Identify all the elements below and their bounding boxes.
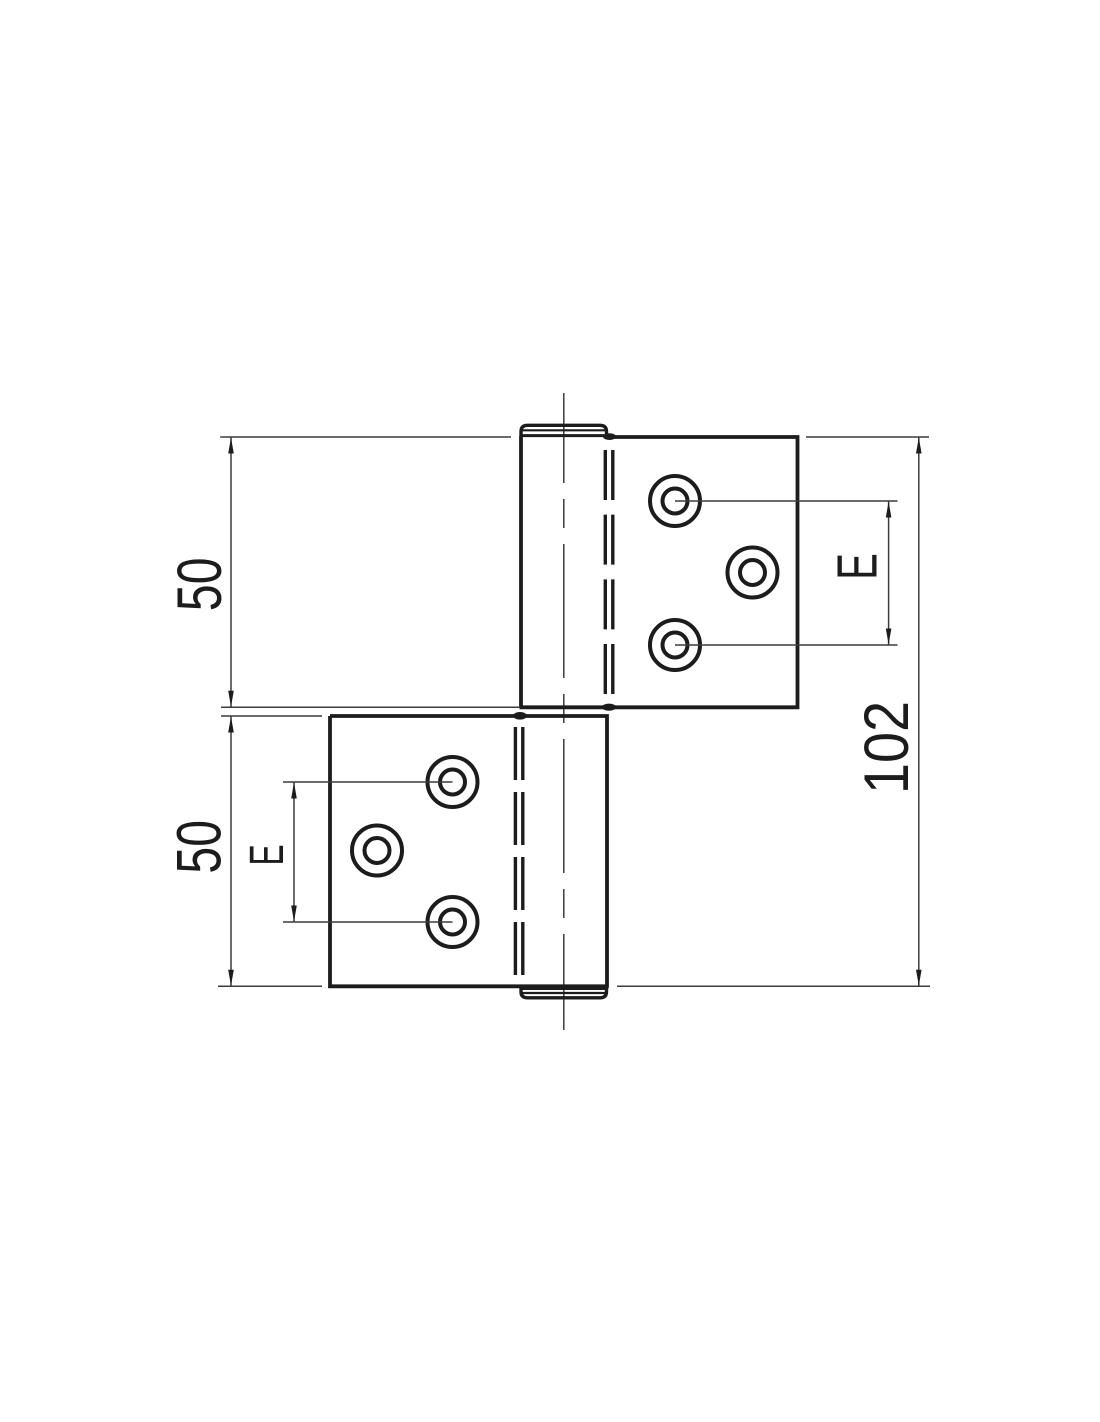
svg-text:50: 50: [163, 820, 234, 874]
svg-text:102: 102: [851, 701, 922, 794]
svg-text:E: E: [239, 844, 293, 865]
svg-text:E: E: [826, 553, 890, 580]
svg-text:50: 50: [164, 557, 235, 611]
